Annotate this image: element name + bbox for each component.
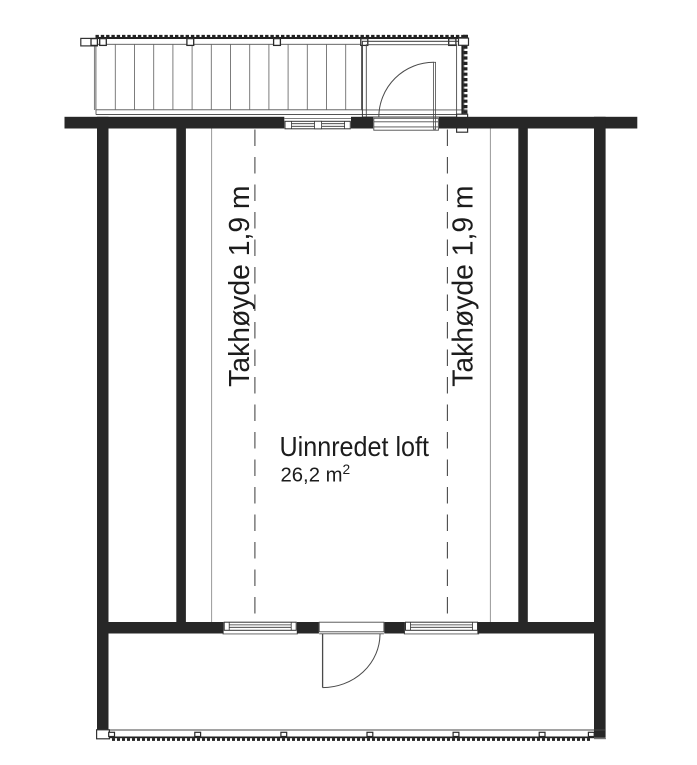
svg-text:26,2 m2: 26,2 m2 (281, 462, 351, 486)
svg-text:Takhøyde 1,9 m: Takhøyde 1,9 m (446, 185, 478, 386)
svg-text:Uinnredet loft: Uinnredet loft (280, 431, 430, 462)
svg-text:Takhøyde 1,9 m: Takhøyde 1,9 m (223, 185, 255, 386)
